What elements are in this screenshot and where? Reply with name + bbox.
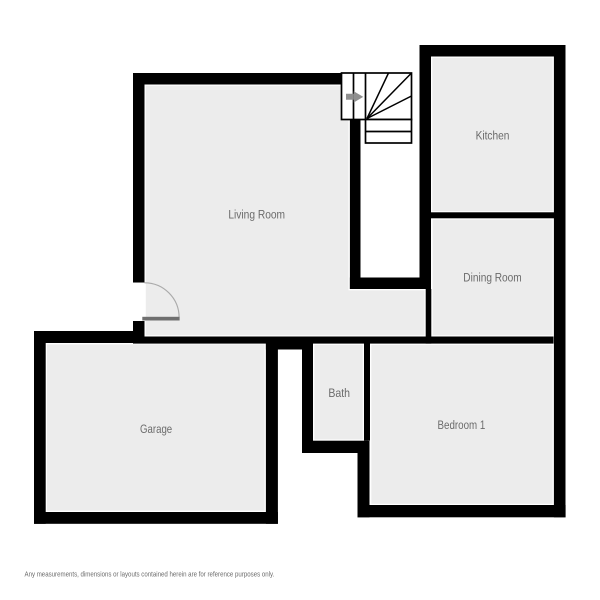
svg-text:Any measurements, dimensions o: Any measurements, dimensions or layouts … [25, 570, 275, 579]
svg-text:Kitchen: Kitchen [476, 128, 510, 142]
svg-text:Bedroom 1: Bedroom 1 [438, 418, 486, 432]
svg-text:Living Room: Living Room [228, 207, 285, 221]
svg-text:Bath: Bath [328, 386, 350, 400]
svg-text:Dining Room: Dining Room [463, 271, 521, 285]
svg-text:Garage: Garage [140, 422, 172, 436]
